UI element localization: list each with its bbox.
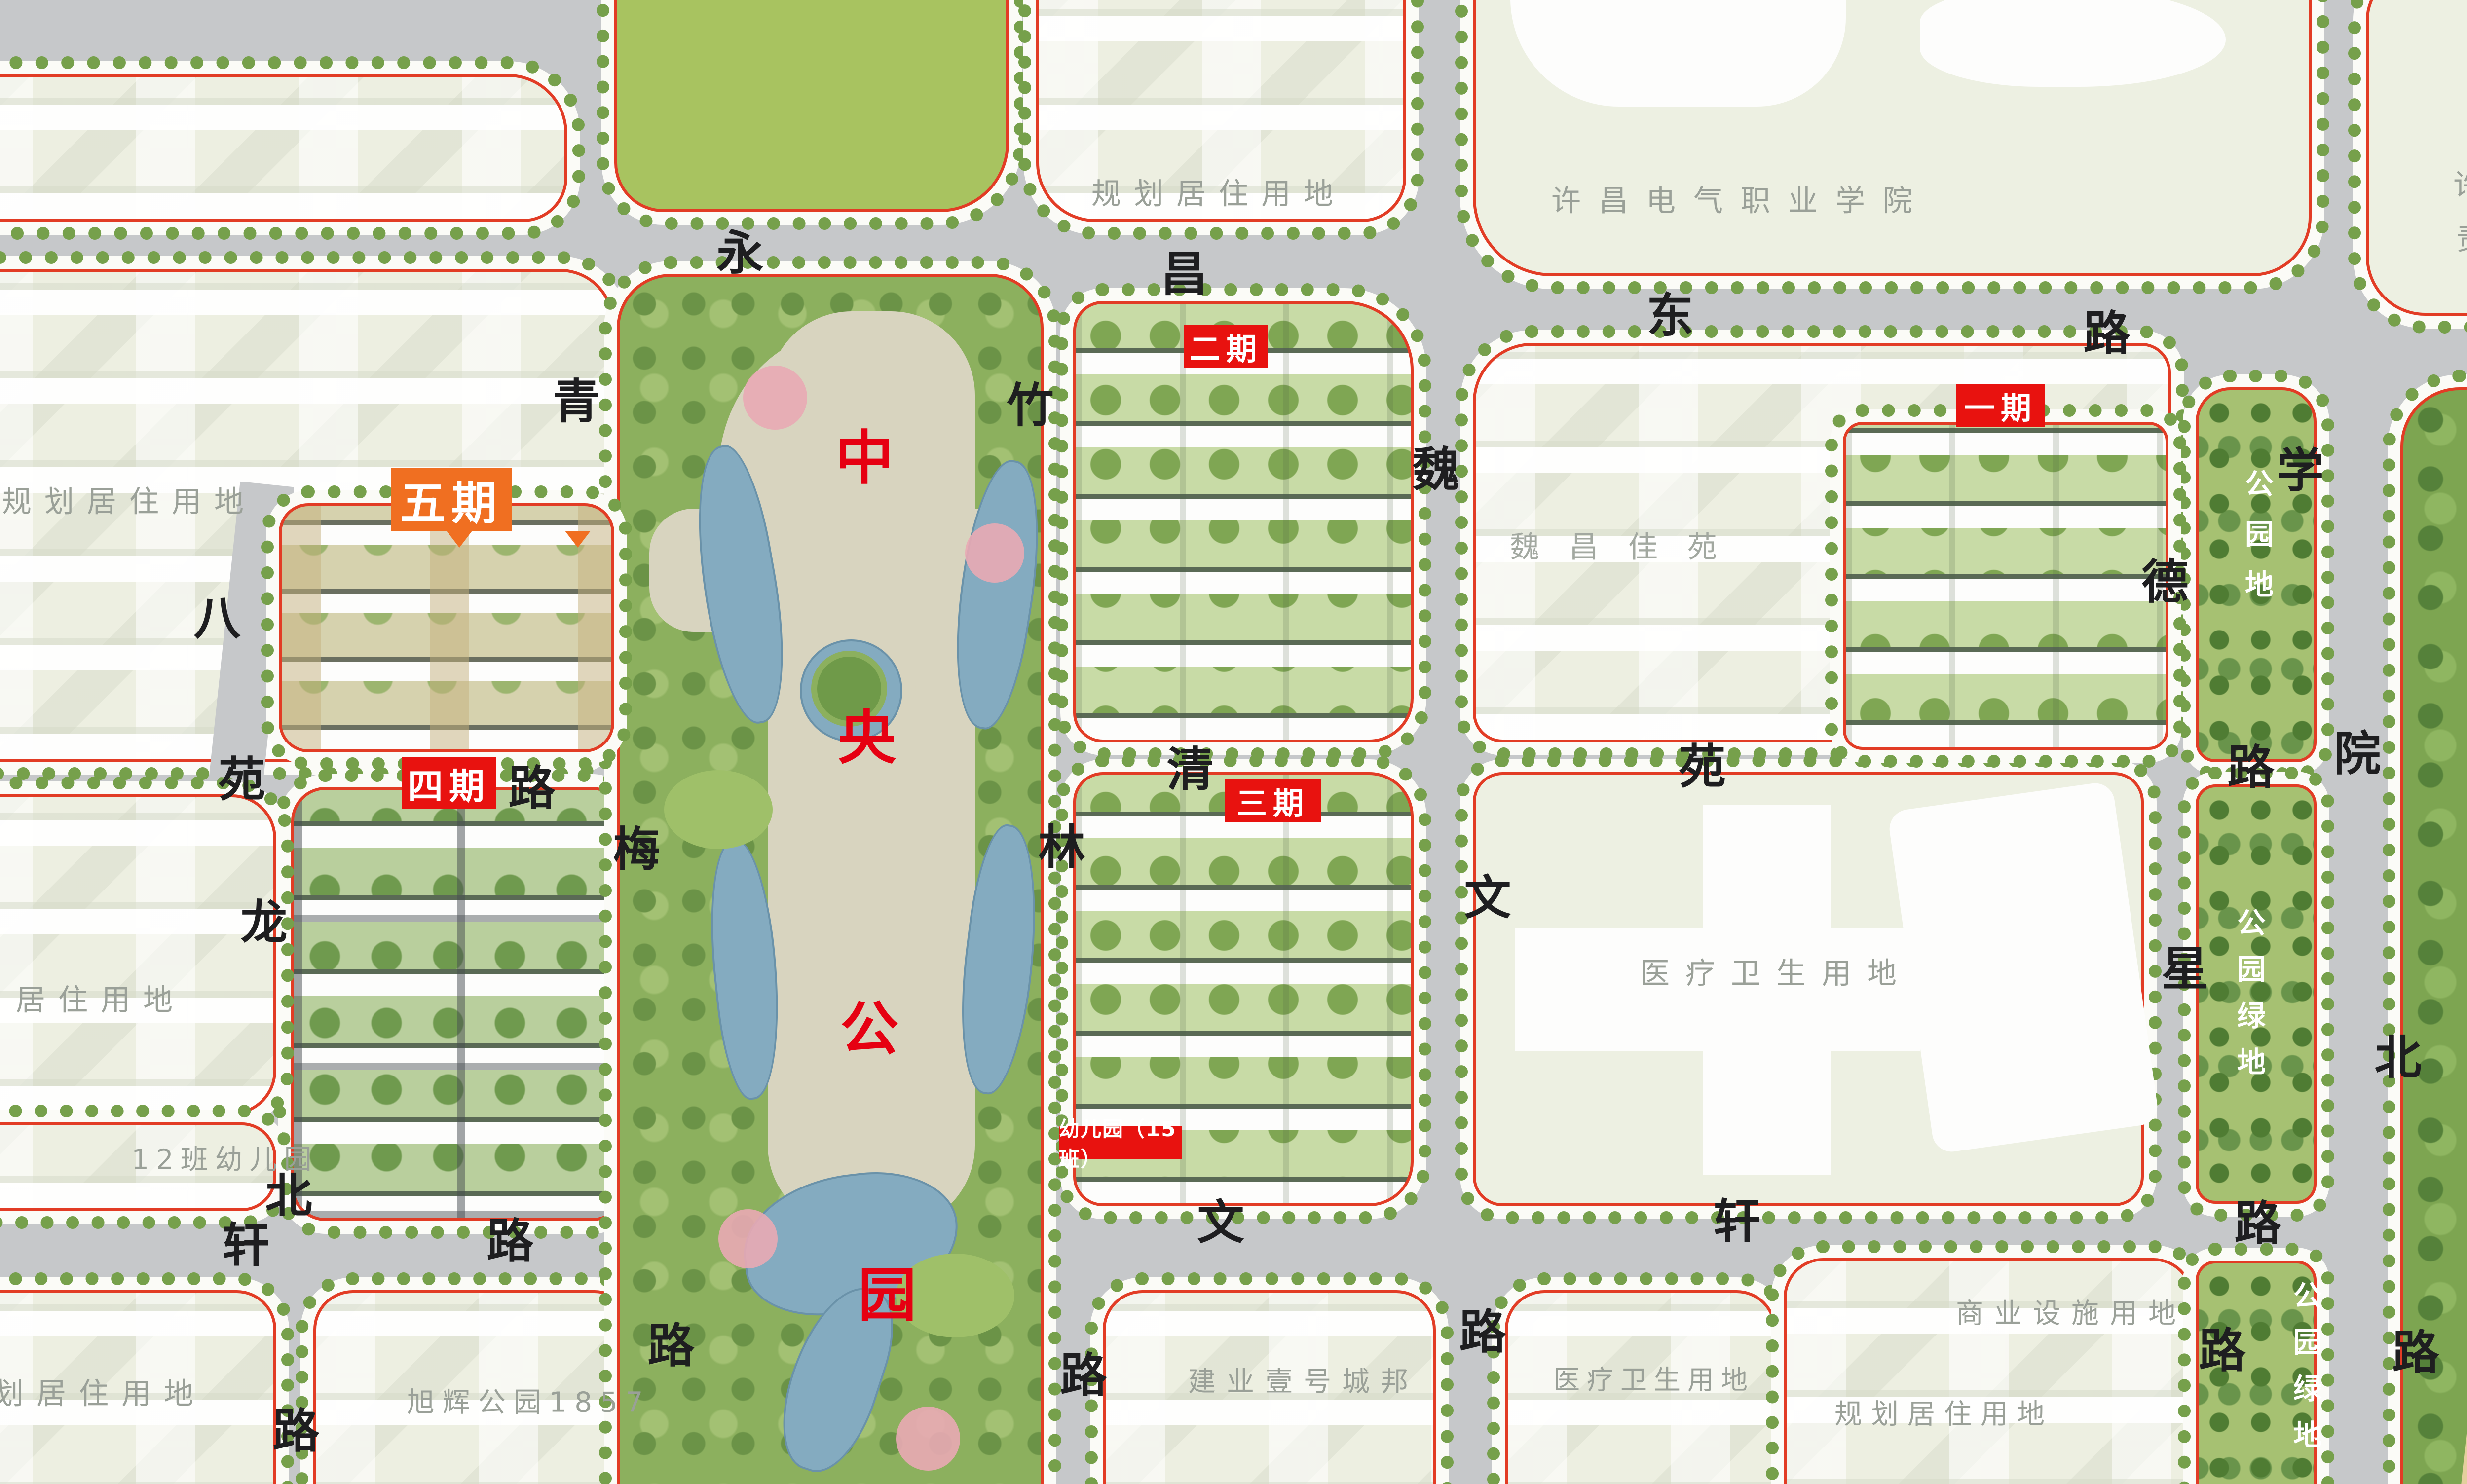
road-label-wenxuan: 轩	[222, 1208, 269, 1275]
label-college: 许昌电气职业学院	[1551, 177, 1930, 220]
parcel-phase4-siteplan	[291, 787, 627, 1221]
road-label-weiwen: 文	[1464, 860, 1511, 928]
tag-phase5: 五期	[391, 468, 512, 531]
tag-kindergarten15: 幼儿园（15班）	[1059, 1126, 1182, 1159]
road-label-qingmei: 梅	[613, 812, 660, 880]
road-label-wenxuan: 轩	[1713, 1184, 1760, 1252]
parcel-top-left-residential	[0, 74, 567, 222]
road-label-dexing: 路	[2199, 1313, 2245, 1381]
label-planned-residential: 规划居住用地	[0, 1370, 206, 1413]
road-label-balong-north: 龙	[240, 885, 287, 953]
road-label-xueyuan-north: 北	[2374, 1020, 2421, 1088]
label-medical-bottom: 医疗卫生用地	[1553, 1358, 1755, 1397]
college-building-shape	[1510, 0, 1846, 107]
parcel-college	[1473, 0, 2312, 276]
tag-phase5-text: 五期	[400, 467, 503, 532]
tag-phase4-text: 四期	[408, 757, 490, 809]
tag-phase2-text: 二期	[1190, 324, 1263, 369]
road-label-balong-north: 北	[265, 1158, 312, 1226]
central-park-char: 央	[838, 691, 896, 775]
label-commercial: 商业设施用地	[1956, 1292, 2187, 1332]
tag-phase5-pointer	[447, 531, 472, 548]
label-xuhui-park: 旭辉公园1857	[407, 1380, 651, 1420]
parcel-central-park	[617, 274, 1044, 1484]
tag-phase3: 三期	[1225, 779, 1321, 822]
hospital-building-shape	[1887, 780, 2160, 1154]
road-label-wenxuan: 路	[486, 1204, 533, 1271]
park-lawn	[664, 770, 773, 849]
park-blossom	[718, 1209, 778, 1268]
label-planned-residential: 规划居住用地	[2, 478, 257, 521]
tag-phase3-text: 三期	[1236, 779, 1309, 823]
road-label-weiwen: 路	[1459, 1295, 1506, 1362]
parcel-phase1-siteplan	[1843, 422, 2168, 750]
park-blossom	[743, 366, 807, 430]
tag-phase5-pointer	[565, 531, 591, 548]
label-planned-residential: 规划居住用地	[1091, 170, 1346, 213]
college-building-shape	[1920, 0, 2226, 87]
road-label-qingmei: 青	[553, 364, 599, 432]
label-medical: 医疗卫生用地	[1640, 950, 1912, 993]
road-label-yuan: 苑	[218, 742, 265, 810]
road-label-zhulin: 竹	[1007, 368, 1053, 436]
road-label-qingyuan: 路	[2227, 730, 2274, 798]
road-label-zhulin: 路	[1060, 1338, 1107, 1406]
road-label-qingmei: 路	[647, 1308, 694, 1376]
label-planned-residential: 规划居住用地	[0, 976, 186, 1019]
road-label-wenxuan: 路	[2234, 1186, 2281, 1254]
tag-phase1: 一期	[1956, 384, 2045, 427]
road-label-qingyuan: 清	[1166, 732, 1213, 800]
road-label-dexing: 星	[2161, 931, 2208, 999]
park-blossom	[896, 1407, 960, 1471]
road-label-qingyuan: 苑	[1679, 729, 1725, 797]
road-label-xueyuan-north: 学	[2277, 433, 2323, 501]
road-label-yongchang-east: 永	[716, 216, 763, 283]
road-label-yongchang-east: 路	[2083, 296, 2130, 364]
road-label-weiwen: 魏	[1412, 432, 1459, 500]
label-jianye: 建业壹号城邦	[1188, 1360, 1419, 1400]
label-park-green: 公园绿地	[2228, 908, 2270, 1145]
parcel-grass-field	[614, 0, 1009, 212]
road-label-balong-north: 八	[193, 581, 240, 648]
road-label-zhulin: 林	[1038, 810, 1085, 878]
road-label-wenxuan: 文	[1197, 1185, 1244, 1253]
central-park-char: 中	[835, 411, 894, 495]
park-path	[2458, 393, 2467, 1484]
road-label-xueyuan-north: 院	[2334, 716, 2381, 784]
park-blossom	[965, 523, 1024, 583]
central-park-char: 公	[840, 982, 898, 1066]
road-label-balong-north: 路	[272, 1394, 319, 1461]
label-park-green: 公园绿地	[2284, 1281, 2326, 1484]
road-label-yongchang-east: 昌	[1160, 237, 1207, 304]
road-label-dexing: 德	[2141, 545, 2188, 612]
label-park-land: 公园地	[2236, 469, 2278, 691]
label-tobacco-line1: 许昌烟草机械	[2453, 161, 2467, 204]
parcel-tobacco-company	[2366, 0, 2467, 316]
road-label-yongchang-east: 东	[1646, 278, 1693, 346]
label-weichang-jiayuan: 魏昌佳苑	[1510, 523, 1747, 566]
road-label-yuan: 路	[508, 751, 555, 818]
master-plan-map: 永 昌 东 路 八 龙 北 路 苑 路 青 梅 路 竹 林 路 魏 文 路 清 …	[0, 0, 2467, 1484]
label-planned-residential: 规划居住用地	[1834, 1392, 2054, 1432]
central-park-char: 园	[858, 1248, 916, 1333]
tag-kindergarten15-text: 幼儿园（15班）	[1059, 1113, 1182, 1173]
label-tobacco-line2: 责任有限公司	[2456, 216, 2467, 259]
tag-phase1-text: 一期	[1964, 383, 2037, 428]
road-label-xueyuan-north: 路	[2392, 1315, 2439, 1383]
parcel-mid-left-residential	[0, 794, 276, 1115]
tag-phase2: 二期	[1184, 325, 1268, 368]
tag-phase4: 四期	[402, 757, 496, 809]
